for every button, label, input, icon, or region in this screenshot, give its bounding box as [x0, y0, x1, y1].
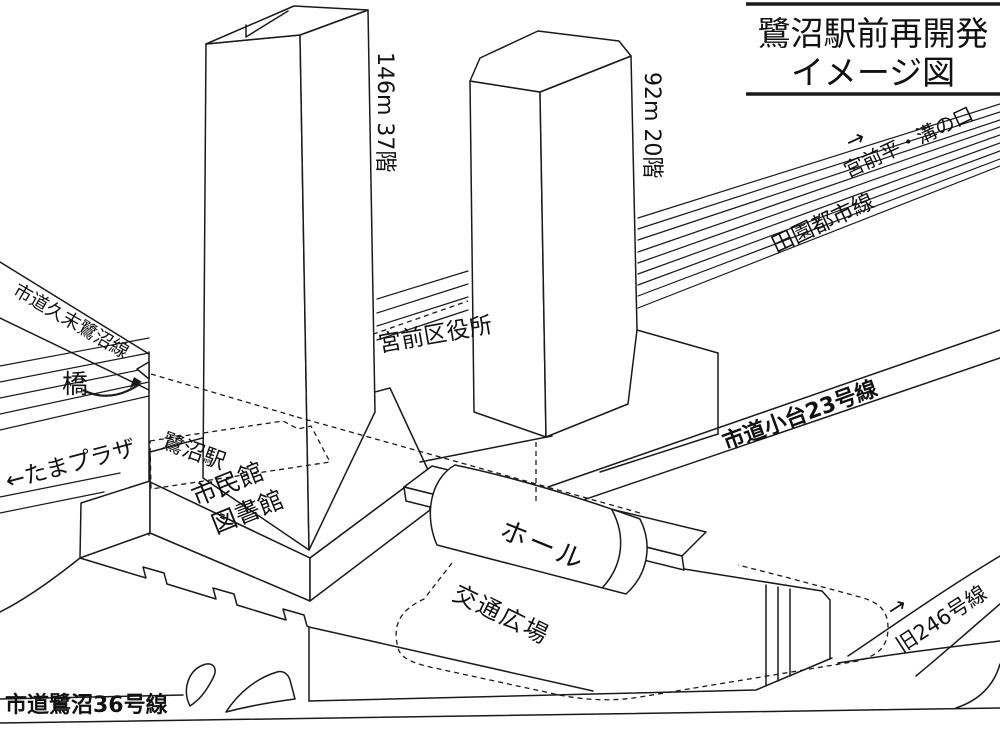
railway-dir-west-label: ←たまプラザ	[3, 435, 139, 495]
plaza-deck	[0, 558, 832, 701]
redevelopment-diagram: 146m 37階 92m 20階 宮前区役所 鷺沼駅 市民館 図書館 ホール 交…	[0, 0, 1000, 739]
road-odai23-label: 市道小台23号線	[719, 376, 881, 456]
diagram-title-line2: イメージ図	[791, 53, 955, 92]
tower-sub-92m	[470, 31, 637, 437]
tower-sub-label: 92m 20階	[639, 72, 664, 178]
road-hisasue-label: 市道久末鷺沼線	[10, 280, 133, 363]
bridge-label: 橋	[62, 370, 88, 400]
transport-plaza-label: 交通広場	[448, 579, 554, 650]
railway-line-label: 田園都市線	[768, 189, 878, 258]
diagram-title-line1: 鷺沼駅前再開発	[758, 14, 989, 53]
title-block: 鷺沼駅前再開発 イメージ図	[746, 4, 1000, 94]
tower-main-label: 146m 37階	[372, 52, 397, 172]
road-saginuma36-label: 市道鷺沼36号線	[5, 692, 168, 718]
bridge-flag-icon	[137, 362, 149, 379]
